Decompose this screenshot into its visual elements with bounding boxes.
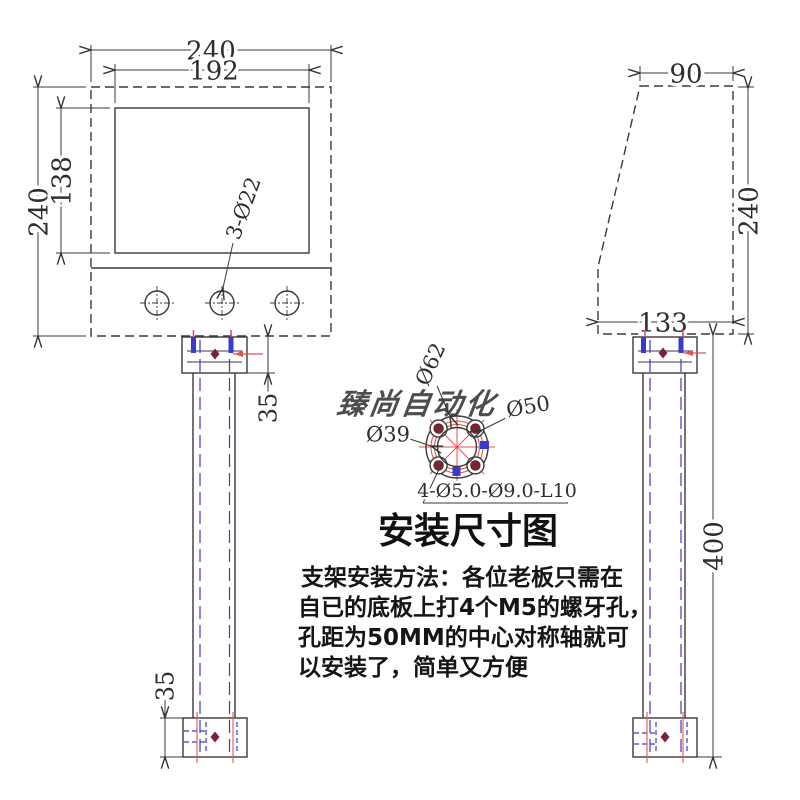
front-button-middle — [205, 286, 239, 320]
clamp-screw — [641, 337, 646, 353]
installation-drawing: 240 192 240 138 3-Ø22 — [0, 0, 800, 800]
key-slot — [480, 441, 489, 449]
front-screen — [115, 108, 309, 253]
front-view — [91, 87, 331, 336]
dim-flange-inner: Ø39 — [366, 423, 410, 447]
dim-top-bracket-height: 35 — [255, 393, 283, 424]
dim-flange-outer: Ø62 — [411, 339, 451, 389]
center-mark — [659, 348, 668, 359]
center-mark — [211, 349, 220, 360]
front-dimensions — [33, 45, 331, 336]
clamp-screw — [191, 337, 196, 353]
note-line-4: 以安装了，简单又方便 — [298, 654, 529, 681]
front-pole-assembly — [182, 330, 263, 763]
side-dimensions — [598, 66, 754, 334]
center-mark — [661, 732, 670, 743]
drawing-title: 安装尺寸图 — [378, 511, 558, 552]
note-line-1: 支架安装方法：各位老板只需在 — [300, 564, 623, 591]
drawing-canvas: 240 192 240 138 3-Ø22 — [0, 0, 800, 800]
clamp-screw — [679, 337, 684, 353]
dim-side-height: 240 — [734, 186, 764, 236]
side-pole-assembly — [633, 330, 706, 763]
clamp-screw — [229, 337, 234, 353]
dim-bottom-bracket-height: 35 — [152, 671, 180, 702]
dim-button-holes: 3-Ø22 — [221, 174, 266, 243]
leader-button-holes — [223, 243, 233, 288]
note-line-2: 自已的底板上打4个M5的螺牙孔， — [298, 594, 652, 621]
dim-front-screen-height: 138 — [47, 156, 77, 206]
center-mark — [211, 732, 220, 743]
watermark: 臻尚自动化 — [335, 387, 501, 421]
dim-front-screen-width: 192 — [189, 56, 239, 86]
dim-flange-bolt-circle: Ø50 — [504, 391, 551, 422]
front-button-left — [140, 286, 174, 320]
side-view — [598, 86, 733, 334]
dim-side-top-depth: 90 — [669, 59, 702, 89]
side-housing-outline — [598, 86, 733, 334]
note-line-3: 孔距为50MM的中心对称轴就可 — [298, 624, 629, 651]
front-button-right — [270, 286, 304, 320]
key-slot — [453, 467, 461, 476]
dim-flange-mount-holes: 4-Ø5.0-Ø9.0-L10 — [417, 480, 577, 502]
dim-pole-length: 400 — [699, 521, 729, 571]
